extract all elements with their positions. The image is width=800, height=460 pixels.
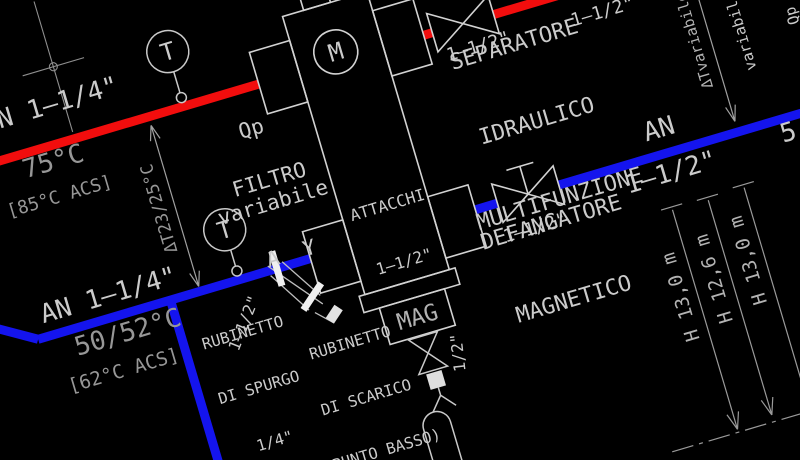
rotated-drawing-plane: AN 1–1/4" 75°C [85°C ACS] Qp variabile Δ… bbox=[0, 0, 800, 460]
filter-label-line2: A Y bbox=[251, 231, 331, 277]
qp-right-line1: variabile bbox=[720, 0, 761, 73]
thermometer-supply-stem bbox=[174, 72, 180, 93]
connections-line2: 1–1/2" bbox=[364, 241, 443, 282]
drain-valve-line3: (PUNTO BASSO) bbox=[321, 426, 443, 460]
qp-right-line2: Qp bbox=[772, 0, 800, 57]
drain-hose-cap bbox=[426, 370, 446, 390]
connections-line1: ATTACCHI bbox=[348, 185, 427, 226]
dirt-separator-line1: DEFANGATORE bbox=[478, 190, 625, 257]
bleed-valve-line1: RUBINETTO bbox=[200, 312, 286, 354]
filter-label-line1: FILTRO bbox=[230, 158, 310, 204]
drain-size-label: 1/2" bbox=[446, 332, 470, 372]
bleed-valve-line3: 1/4" bbox=[232, 421, 318, 460]
dirt-separator-line2: MAGNETICO bbox=[501, 267, 648, 334]
cad-canvas: AN 1–1/4" 75°C [85°C ACS] Qp variabile Δ… bbox=[0, 0, 800, 460]
drain-valve-line1: RUBINETTO bbox=[289, 317, 411, 370]
bleed-valve-line2: DI SPURGO bbox=[216, 367, 302, 409]
datum-dashed-line bbox=[672, 346, 800, 452]
drain-valve-line2: DI SCARICO bbox=[305, 371, 427, 424]
separator-top-vent bbox=[297, 0, 330, 10]
